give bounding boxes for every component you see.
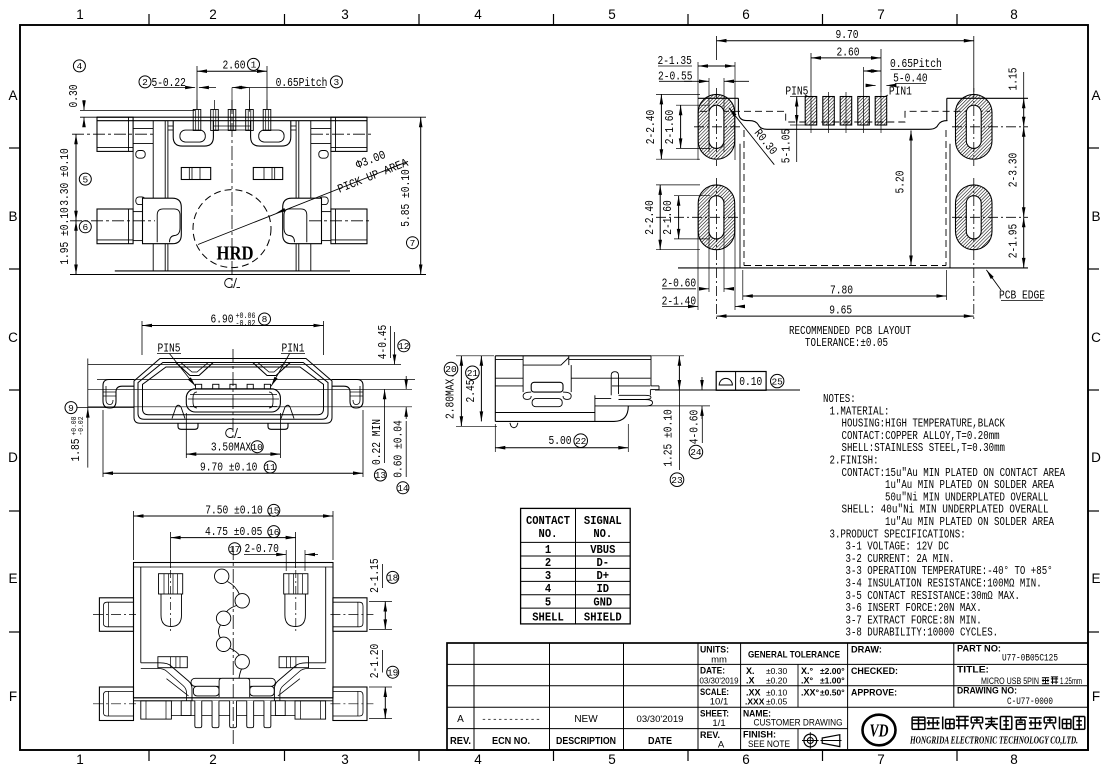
svg-text:9: 9: [68, 403, 74, 414]
svg-text:19: 19: [387, 667, 399, 678]
svg-text:1: 1: [76, 7, 84, 22]
svg-text:mm: mm: [711, 655, 727, 666]
svg-text:18: 18: [387, 573, 399, 584]
svg-text:TOLERANCE:±0.05: TOLERANCE:±0.05: [805, 336, 888, 350]
svg-text:1/1: 1/1: [712, 718, 725, 729]
svg-text:NEW: NEW: [574, 714, 598, 725]
svg-text:1: 1: [545, 544, 551, 557]
svg-text:2.60: 2.60: [837, 46, 860, 60]
svg-text:NO.: NO.: [539, 528, 558, 541]
svg-text:HOUSING:HIGH TEMPERATURE,BLACK: HOUSING:HIGH TEMPERATURE,BLACK: [842, 418, 1006, 431]
svg-text:6.90: 6.90: [211, 313, 234, 327]
svg-text:ID: ID: [597, 583, 610, 596]
svg-text:2-2.40: 2-2.40: [643, 200, 657, 235]
svg-text:7: 7: [877, 7, 885, 22]
svg-text:2.80MAX.: 2.80MAX.: [444, 373, 458, 419]
svg-text:2: 2: [142, 77, 148, 88]
svg-text:GND: GND: [593, 597, 612, 610]
svg-text:3-1 VOLTAGE: 12V DC: 3-1 VOLTAGE: 12V DC: [846, 541, 950, 554]
svg-text:3.50MAX: 3.50MAX: [211, 441, 251, 455]
svg-text:APPROVE:: APPROVE:: [851, 688, 897, 699]
svg-text:SIGNAL: SIGNAL: [584, 515, 622, 528]
svg-text:SHEET:: SHEET:: [700, 709, 729, 719]
svg-text:8: 8: [262, 314, 268, 325]
svg-text:4: 4: [474, 7, 482, 22]
svg-text:0.60 ±0.04: 0.60 ±0.04: [392, 420, 406, 478]
svg-text:F: F: [1092, 689, 1100, 704]
svg-text:2-1.15: 2-1.15: [368, 558, 382, 593]
svg-text:0.10: 0.10: [739, 375, 762, 389]
svg-text:A: A: [8, 88, 17, 103]
svg-text:6: 6: [82, 222, 88, 233]
svg-text:1.25 ±0.10: 1.25 ±0.10: [662, 409, 676, 467]
svg-text:.X: .X: [746, 676, 755, 686]
svg-text:UNITS:: UNITS:: [700, 645, 729, 655]
svg-text:ECN NO.: ECN NO.: [492, 736, 530, 747]
svg-text:21: 21: [467, 368, 479, 379]
svg-text:22: 22: [575, 436, 587, 447]
svg-text:CHECKED:: CHECKED:: [851, 666, 898, 677]
svg-text:D-: D-: [597, 557, 610, 570]
svg-text:C-U77-0000: C-U77-0000: [1007, 696, 1053, 708]
svg-text:03/30'2019: 03/30'2019: [637, 714, 684, 725]
svg-text:3-8 DURABILITY:10000 CYCLES.: 3-8 DURABILITY:10000 CYCLES.: [846, 627, 999, 640]
svg-text:1.25mm: 1.25mm: [1060, 676, 1082, 687]
svg-text:6: 6: [742, 7, 750, 22]
svg-text:20: 20: [445, 364, 457, 375]
svg-text:SHELL: 40u″Ni MIN UNDERPLATED: SHELL: 40u″Ni MIN UNDERPLATED OVERALL: [842, 504, 1049, 517]
svg-text:PART NO:: PART NO:: [957, 644, 1001, 655]
svg-text:CONTACT:15u″Au MIN PLATED ON C: CONTACT:15u″Au MIN PLATED ON CONTACT ARE…: [842, 467, 1066, 480]
svg-text:SHIELD: SHIELD: [584, 612, 622, 625]
svg-text:3.30 ±0.10: 3.30 ±0.10: [58, 148, 72, 206]
svg-text:B: B: [1091, 209, 1100, 224]
svg-text:1: 1: [251, 60, 257, 71]
svg-text:VD: VD: [870, 720, 889, 740]
svg-text:1u″Au MIN PLATED ON SOLDER ARE: 1u″Au MIN PLATED ON SOLDER AREA: [885, 479, 1054, 492]
svg-text:SEE NOTE: SEE NOTE: [748, 739, 790, 749]
svg-text:4.75 ±0.05: 4.75 ±0.05: [205, 525, 263, 539]
svg-text:-0.02: -0.02: [78, 417, 86, 436]
svg-text:5.20: 5.20: [894, 171, 908, 194]
svg-text:CUSTOMER DRAWING: CUSTOMER DRAWING: [754, 718, 843, 729]
svg-text:HONGRIDA ELECTRONIC TECHNOLOGY: HONGRIDA ELECTRONIC TECHNOLOGY CO,LTD.: [909, 735, 1078, 747]
svg-text:.X°: .X°: [801, 676, 814, 686]
svg-text:SHELL: SHELL: [532, 612, 564, 625]
svg-text:12: 12: [398, 341, 410, 352]
svg-text:2.FINISH:: 2.FINISH:: [830, 455, 879, 468]
svg-text:±0.30: ±0.30: [766, 666, 787, 676]
svg-text:CONTACT:COPPER ALLOY,T=0.20mm: CONTACT:COPPER ALLOY,T=0.20mm: [842, 430, 1000, 443]
svg-text:2: 2: [209, 752, 217, 767]
svg-text:5-1.05: 5-1.05: [780, 129, 794, 164]
svg-text:7.80: 7.80: [830, 284, 853, 298]
svg-text:13: 13: [375, 470, 387, 481]
svg-text:1.MATERIAL:: 1.MATERIAL:: [830, 405, 890, 418]
svg-text:4: 4: [77, 61, 83, 72]
svg-text:5: 5: [608, 752, 616, 767]
svg-text:0.22 MIN: 0.22 MIN: [370, 419, 384, 465]
svg-text:3-5 CONTACT RESISTANCE:30mΩ MA: 3-5 CONTACT RESISTANCE:30mΩ MAX.: [846, 590, 1020, 603]
svg-text:0.30: 0.30: [67, 85, 81, 108]
svg-text:DRAWING NO:: DRAWING NO:: [957, 686, 1017, 697]
svg-text:.XXX: .XXX: [745, 697, 765, 707]
svg-text:DATE: DATE: [648, 736, 672, 747]
svg-text:2-1.20: 2-1.20: [368, 644, 382, 679]
svg-text:3-7 EXTRACT FORCE:8N MIN.: 3-7 EXTRACT FORCE:8N MIN.: [846, 614, 982, 627]
svg-text:50u″Ni MIN UNDERPLATED OVERALL: 50u″Ni MIN UNDERPLATED OVERALL: [885, 491, 1049, 504]
svg-text:3: 3: [545, 570, 551, 583]
svg-text:3-2 CURRENT: 2A MIN.: 3-2 CURRENT: 2A MIN.: [846, 553, 955, 566]
svg-text:3-3 OPERATION TEMPERATURE:-40°: 3-3 OPERATION TEMPERATURE:-40° TO +85°: [846, 565, 1053, 578]
svg-text:4-0.60: 4-0.60: [688, 410, 702, 445]
svg-text:D+: D+: [597, 570, 610, 583]
svg-text:B: B: [8, 209, 17, 224]
svg-text:24: 24: [690, 447, 702, 458]
svg-text:REV.: REV.: [700, 730, 720, 740]
svg-text:2-2.40: 2-2.40: [644, 110, 658, 145]
svg-text:4: 4: [545, 583, 551, 596]
svg-text:3: 3: [334, 77, 340, 88]
svg-text:-0.02: -0.02: [236, 319, 256, 328]
svg-text:10/1: 10/1: [710, 697, 729, 708]
svg-text:03/30'2019: 03/30'2019: [700, 676, 739, 686]
svg-text:6: 6: [742, 752, 750, 767]
svg-text:X.°: X.°: [801, 666, 814, 676]
svg-text:REV.: REV.: [450, 736, 471, 747]
svg-text:.XX°: .XX°: [801, 688, 820, 698]
svg-text:D: D: [1091, 450, 1101, 465]
svg-text:SCALE:: SCALE:: [700, 687, 729, 697]
svg-text:8: 8: [1010, 7, 1018, 22]
svg-text:4: 4: [474, 752, 482, 767]
svg-text:D: D: [8, 450, 18, 465]
svg-text:GENERAL TOLERANCE: GENERAL TOLERANCE: [748, 650, 840, 661]
svg-text:1: 1: [76, 752, 84, 767]
svg-text:A: A: [718, 740, 725, 751]
svg-text:U77-0B05C125: U77-0B05C125: [1002, 653, 1058, 665]
svg-text:C: C: [8, 330, 18, 345]
svg-text:5.00: 5.00: [549, 434, 572, 448]
svg-text:2-3.30: 2-3.30: [1006, 153, 1020, 188]
svg-text:SHELL:STAINLESS STEEL,T=0.30mm: SHELL:STAINLESS STEEL,T=0.30mm: [842, 442, 1006, 455]
svg-text:8: 8: [1010, 752, 1018, 767]
svg-text:A: A: [1091, 88, 1100, 103]
svg-text:10: 10: [251, 442, 263, 453]
svg-text:3-6 INSERT FORCE:20N MAX.: 3-6 INSERT FORCE:20N MAX.: [846, 602, 982, 615]
svg-text:VBUS: VBUS: [590, 544, 615, 557]
svg-text:-----------: -----------: [481, 715, 540, 725]
svg-text:±0.20: ±0.20: [766, 676, 787, 686]
svg-text:23: 23: [671, 475, 683, 486]
svg-text:17: 17: [229, 544, 240, 555]
svg-text:E: E: [1091, 571, 1100, 586]
svg-text:NOTES:: NOTES:: [823, 393, 856, 406]
svg-text:16: 16: [268, 527, 280, 538]
svg-text:F: F: [9, 689, 17, 704]
svg-text:5: 5: [545, 597, 551, 610]
svg-text:4-0.45: 4-0.45: [376, 325, 390, 360]
svg-text:3: 3: [341, 752, 349, 767]
svg-text:25: 25: [771, 376, 783, 387]
svg-text:3-4 INSULATION RESISTANCE:100M: 3-4 INSULATION RESISTANCE:100MΩ MIN.: [846, 578, 1042, 591]
svg-text:CONTACT: CONTACT: [526, 515, 570, 528]
svg-text:HRD: HRD: [217, 243, 254, 265]
svg-text:9.70 ±0.10: 9.70 ±0.10: [200, 461, 258, 475]
svg-text:5: 5: [82, 174, 88, 185]
svg-text:1.15: 1.15: [1007, 68, 1021, 91]
svg-text:DRAW:: DRAW:: [851, 645, 882, 656]
svg-text:2-1.60: 2-1.60: [663, 110, 677, 145]
svg-text:3.PRODUCT SPECIFICATIONS:: 3.PRODUCT SPECIFICATIONS:: [830, 528, 966, 541]
svg-text:±2.00°: ±2.00°: [820, 666, 845, 676]
svg-text:7: 7: [410, 238, 416, 249]
svg-text:±0.05: ±0.05: [766, 697, 787, 707]
svg-text:7.50 ±0.10: 7.50 ±0.10: [205, 504, 263, 518]
svg-text:X.: X.: [746, 666, 755, 676]
svg-text:PIN1: PIN1: [889, 84, 912, 98]
svg-text:2: 2: [545, 557, 551, 570]
svg-text:2: 2: [209, 7, 217, 22]
svg-text:11: 11: [264, 462, 276, 473]
svg-text:5.85 ±0.10: 5.85 ±0.10: [399, 169, 413, 227]
svg-text:14: 14: [397, 483, 409, 494]
svg-text:±1.00°: ±1.00°: [820, 676, 845, 686]
svg-text:FINISH:: FINISH:: [743, 730, 776, 740]
svg-text:5: 5: [608, 7, 616, 22]
svg-text:1.95 ±0.10: 1.95 ±0.10: [58, 207, 72, 265]
svg-text:7: 7: [877, 752, 885, 767]
svg-text:9.70: 9.70: [836, 28, 859, 42]
svg-text:2-1.95: 2-1.95: [1006, 224, 1020, 259]
svg-text:2.45: 2.45: [464, 380, 478, 403]
svg-text:DESCRIPTION: DESCRIPTION: [556, 736, 616, 747]
svg-text:9.65: 9.65: [829, 304, 852, 318]
svg-text:15: 15: [268, 506, 280, 517]
svg-text:TITLE:: TITLE:: [957, 665, 989, 676]
svg-text:DATE:: DATE:: [700, 666, 725, 676]
svg-text:2-1.60: 2-1.60: [661, 200, 675, 235]
svg-text:1.85: 1.85: [69, 439, 83, 462]
svg-text:E: E: [8, 571, 17, 586]
svg-text:2.60: 2.60: [223, 59, 246, 73]
svg-text:NO.: NO.: [593, 528, 612, 541]
svg-text:1u″Au MIN PLATED ON SOLDER ARE: 1u″Au MIN PLATED ON SOLDER AREA: [885, 516, 1054, 529]
svg-text:±0.50°: ±0.50°: [820, 688, 845, 698]
svg-text:3: 3: [341, 7, 349, 22]
svg-text:C: C: [1091, 330, 1101, 345]
svg-text:A: A: [457, 714, 464, 725]
